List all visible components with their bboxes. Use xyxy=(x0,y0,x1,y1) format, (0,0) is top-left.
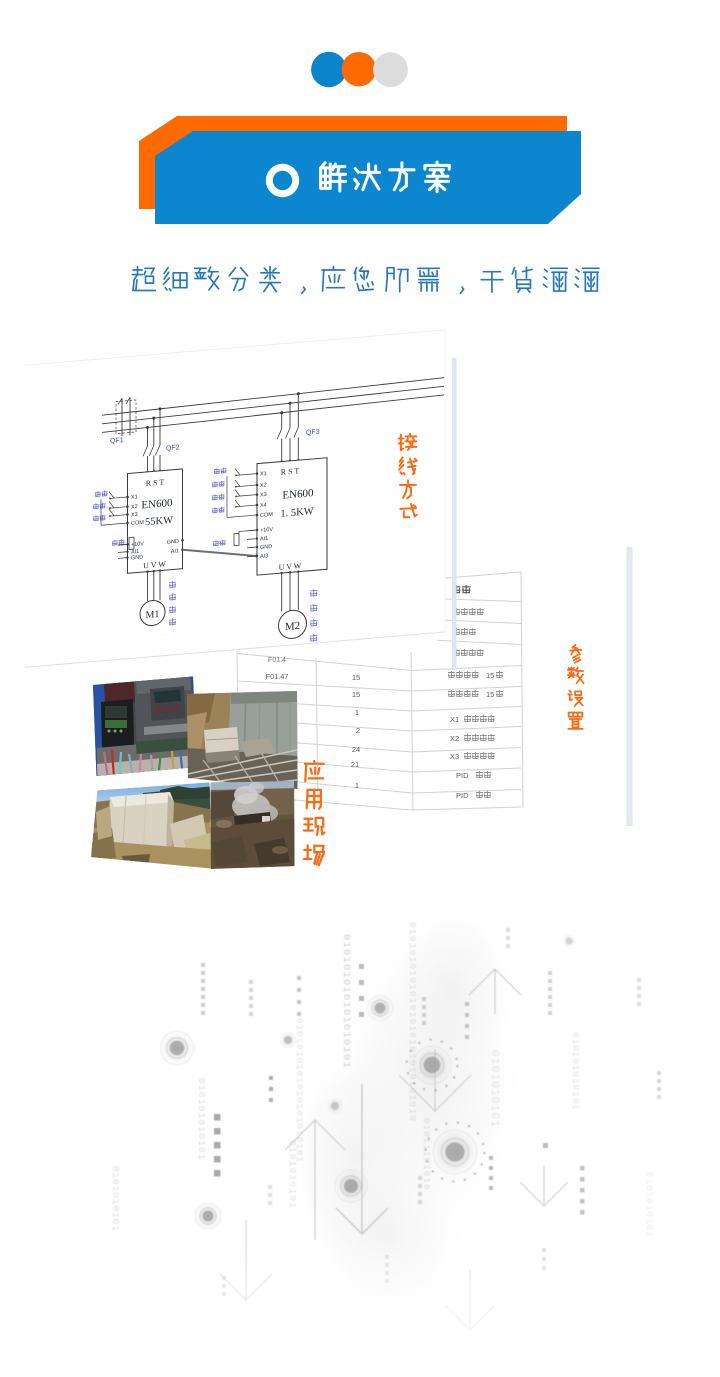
svg-text:PID: PID xyxy=(456,791,469,800)
svg-text:X3: X3 xyxy=(450,752,459,761)
svg-text:QF3: QF3 xyxy=(306,429,320,437)
svg-text:COM: COM xyxy=(131,520,144,527)
svg-text:R S T: R S T xyxy=(281,466,300,477)
svg-text:+10V: +10V xyxy=(260,527,273,534)
svg-text:X3: X3 xyxy=(260,492,267,499)
svg-text:X2: X2 xyxy=(260,482,267,489)
svg-text:0101010101: 0101010101 xyxy=(110,1166,120,1232)
svg-text:+10V: +10V xyxy=(131,541,144,548)
svg-text:X1: X1 xyxy=(450,715,459,724)
svg-text:AI1: AI1 xyxy=(260,536,268,543)
svg-text:M2: M2 xyxy=(285,620,300,633)
svg-text:010101010101010101: 010101010101010101 xyxy=(340,934,352,1069)
svg-text:R S T: R S T xyxy=(146,478,165,489)
svg-text:21: 21 xyxy=(351,760,359,769)
svg-text:GND: GND xyxy=(167,539,179,546)
svg-text:15: 15 xyxy=(486,671,494,680)
svg-text:1: 1 xyxy=(355,781,359,790)
svg-text:X3: X3 xyxy=(131,512,138,519)
svg-text:2: 2 xyxy=(356,726,360,735)
svg-text:55KW: 55KW xyxy=(145,515,173,528)
svg-text:M1: M1 xyxy=(146,609,160,621)
svg-text:15: 15 xyxy=(486,690,494,699)
svg-text:AI3: AI3 xyxy=(260,553,268,560)
svg-text:0101010101: 0101010101 xyxy=(644,1172,654,1238)
svg-text:X2: X2 xyxy=(131,504,138,511)
svg-text:01011101010: 01011101010 xyxy=(421,1118,431,1191)
svg-text:010101010101: 010101010101 xyxy=(196,1078,207,1161)
svg-text:X2: X2 xyxy=(450,734,459,743)
svg-text:PID: PID xyxy=(456,771,469,780)
svg-text:1: 1 xyxy=(355,708,359,717)
svg-text:F01.4: F01.4 xyxy=(268,657,286,664)
svg-text:X1: X1 xyxy=(131,494,138,501)
svg-text:X4: X4 xyxy=(260,502,267,509)
svg-text:15: 15 xyxy=(352,673,360,682)
svg-text:24: 24 xyxy=(352,745,360,754)
svg-text:0101010101: 0101010101 xyxy=(287,1140,298,1209)
svg-text:X1: X1 xyxy=(260,471,267,478)
svg-text:QF1: QF1 xyxy=(110,437,124,445)
svg-text:COM: COM xyxy=(260,512,273,519)
svg-text:0101010101: 0101010101 xyxy=(488,1050,500,1128)
svg-text:GND: GND xyxy=(131,554,143,561)
svg-text:15: 15 xyxy=(352,690,360,699)
svg-text:GND: GND xyxy=(260,544,272,551)
svg-text:QF2: QF2 xyxy=(166,444,180,452)
svg-text:F01.47: F01.47 xyxy=(266,672,289,681)
svg-text:AI1: AI1 xyxy=(171,548,179,555)
svg-text:010101010101: 010101010101 xyxy=(570,1032,580,1111)
